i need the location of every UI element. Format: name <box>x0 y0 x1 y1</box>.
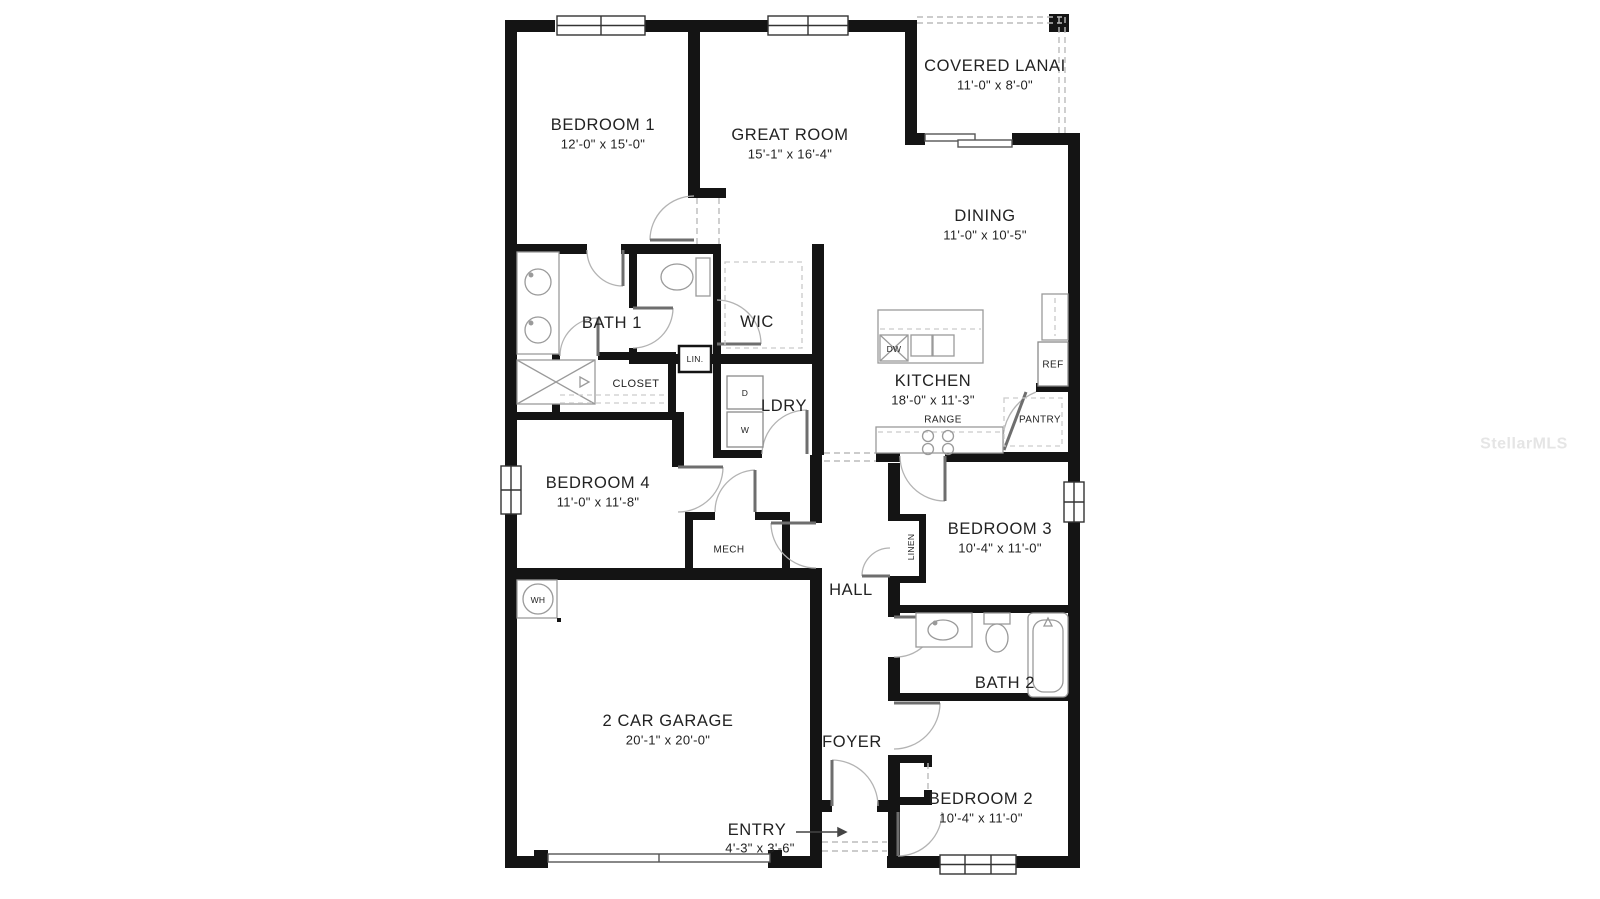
room-label-hall: HALL <box>829 581 873 599</box>
bedroom2-window <box>940 855 1016 874</box>
room-label-bedroom3: BEDROOM 3 <box>948 520 1052 538</box>
room-dims-bedroom2: 10'-4" x 11'-0" <box>939 811 1023 826</box>
fixture-label-ref: REF <box>1042 360 1063 371</box>
room-label-covered-lanai: COVERED LANAI <box>924 57 1066 75</box>
bedroom3-window <box>1064 482 1084 522</box>
room-dims-garage: 20'-1" x 20'-0" <box>626 733 711 748</box>
mech-door-arc <box>715 470 755 512</box>
room-dims-dining: 11'-0" x 10'-5" <box>943 228 1027 243</box>
floor-plan-drawing: COVERED LANAI 11'-0" x 8'-0" BEDROOM 1 1… <box>0 0 1600 899</box>
room-label-bath1: BATH 1 <box>582 314 642 332</box>
room-label-dining: DINING <box>954 207 1015 225</box>
room-label-bedroom4: BEDROOM 4 <box>546 474 650 492</box>
room-dims-bedroom3: 10'-4" x 11'-0" <box>958 541 1042 556</box>
floor-plan-page: COVERED LANAI 11'-0" x 8'-0" BEDROOM 1 1… <box>0 0 1600 899</box>
laundry-door-arc <box>762 410 807 454</box>
bedroom2-closet-door-arc <box>898 812 942 856</box>
room-dims-entry: 4'-3" x 3'-6" <box>725 841 794 856</box>
bedroom1-door-arc <box>650 196 694 240</box>
room-label-foyer: FOYER <box>822 733 882 751</box>
room-label-great-room: GREAT ROOM <box>731 126 848 144</box>
garage-entry-door-arc <box>771 523 816 568</box>
bath1-shower <box>517 360 595 404</box>
bath1-vanity <box>517 252 559 354</box>
bath2-toilet <box>984 613 1010 652</box>
room-label-mech: MECH <box>713 545 744 556</box>
linen-door-arc <box>862 548 890 576</box>
room-label-garage: 2 CAR GARAGE <box>603 712 734 730</box>
room-label-kitchen: KITCHEN <box>895 372 972 390</box>
bedroom2-door-arc <box>894 703 940 749</box>
room-label-ldry: LDRY <box>761 397 807 415</box>
bath2-vanity <box>916 613 972 647</box>
fixture-label-dw: DW <box>887 344 902 354</box>
cabinet-above-ref <box>1042 294 1068 340</box>
bedroom3-door-arc <box>900 456 945 501</box>
room-label-pantry: PANTRY <box>1019 415 1061 426</box>
kitchen-counter <box>876 427 1003 453</box>
room-label-bedroom1: BEDROOM 1 <box>551 116 655 134</box>
room-dims-bedroom4: 11'-0" x 11'-8" <box>557 495 640 510</box>
bedroom4-window <box>501 466 521 514</box>
fixture-label-dryer: D <box>742 388 748 398</box>
room-label-bedroom2: BEDROOM 2 <box>929 790 1033 808</box>
kitchen-island <box>878 310 983 363</box>
lanai-sliding-door <box>925 134 1012 147</box>
room-dims-bedroom1: 12'-0" x 15'-0" <box>561 137 646 152</box>
great-room-window <box>768 16 848 35</box>
stellar-mls-watermark: StellarMLS <box>1480 436 1568 453</box>
bedroom4-door-arc <box>678 467 723 512</box>
room-label-lin: LIN. <box>687 354 704 364</box>
room-dims-great-room: 15'-1" x 16'-4" <box>748 147 833 162</box>
room-dims-kitchen: 18'-0" x 11'-3" <box>891 393 975 408</box>
room-label-linen: LINEN <box>906 534 916 561</box>
fixture-label-washer: W <box>741 425 749 435</box>
bedroom1-window <box>557 16 645 35</box>
room-dims-covered-lanai: 11'-0" x 8'-0" <box>957 78 1033 93</box>
fixture-label-range: RANGE <box>924 415 962 426</box>
bath1-toilet <box>661 258 710 296</box>
fixture-label-wh: WH <box>531 595 546 605</box>
front-door-arc <box>832 760 878 806</box>
room-label-entry: ENTRY <box>728 821 787 839</box>
bath1-door-arc <box>587 250 623 286</box>
room-label-wic: WIC <box>740 313 774 331</box>
room-label-bath2: BATH 2 <box>975 674 1035 692</box>
room-label-closet: CLOSET <box>612 378 659 390</box>
